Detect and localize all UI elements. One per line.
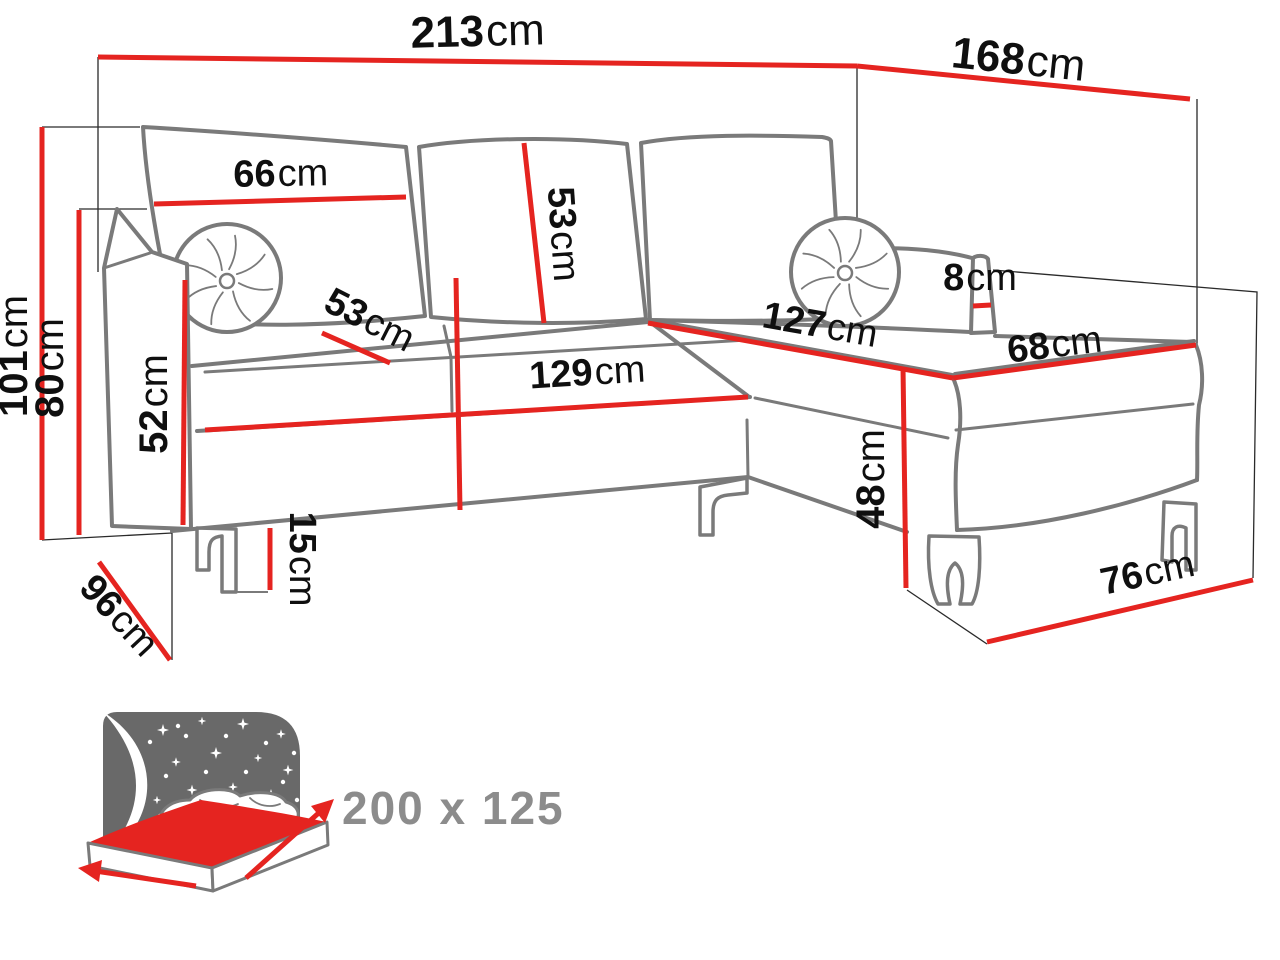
dim-label-168: 168cm (949, 28, 1087, 91)
dim-52-line (183, 280, 185, 525)
leg-chaise-front (928, 536, 979, 604)
dim-label-66: 66cm (233, 152, 329, 196)
dim-129-line (205, 397, 748, 430)
chaise-bottom-right-edge (957, 480, 1197, 530)
seat-cushion-divider (444, 326, 452, 411)
dim-8-tick (973, 305, 991, 306)
ext-line (993, 270, 1257, 578)
diagram-canvas: 213cm 168cm 101cm 80cm 66cm 53cm 53cm 52… (0, 0, 1280, 960)
base-corner-seam (747, 420, 748, 477)
dim-label-96: 96cm (71, 567, 166, 665)
dim-label-8: 8cm (943, 257, 1017, 299)
chaise-side-seam (956, 404, 1193, 430)
dim-label-53-back: 53cm (539, 185, 588, 283)
sleeping-area-label: 200 x 125 (342, 782, 565, 834)
dim-48-line (903, 367, 906, 588)
dim-label-15: 15cm (281, 512, 323, 607)
leg-front-left (197, 528, 236, 592)
dim-label-68: 68cm (1005, 318, 1104, 371)
pillow-button (838, 266, 852, 280)
dim-label-213: 213cm (410, 5, 545, 57)
dim-213-line (98, 57, 857, 66)
dim-label-80: 80cm (28, 318, 72, 418)
dim-label-52: 52cm (132, 354, 176, 454)
leg-middle (700, 478, 747, 535)
pillow-button (220, 274, 234, 288)
dim-label-48: 48cm (849, 429, 893, 529)
dim-label-129: 129cm (528, 349, 646, 398)
sofa-dimensions-diagram: 213cm 168cm 101cm 80cm 66cm 53cm 53cm 52… (0, 0, 1280, 960)
chaise-right-edge (1196, 345, 1202, 480)
ext-line (42, 533, 172, 540)
sleeping-function-icon: 200 x 125 (78, 712, 565, 891)
chaise-front-corner-edge (953, 378, 960, 530)
